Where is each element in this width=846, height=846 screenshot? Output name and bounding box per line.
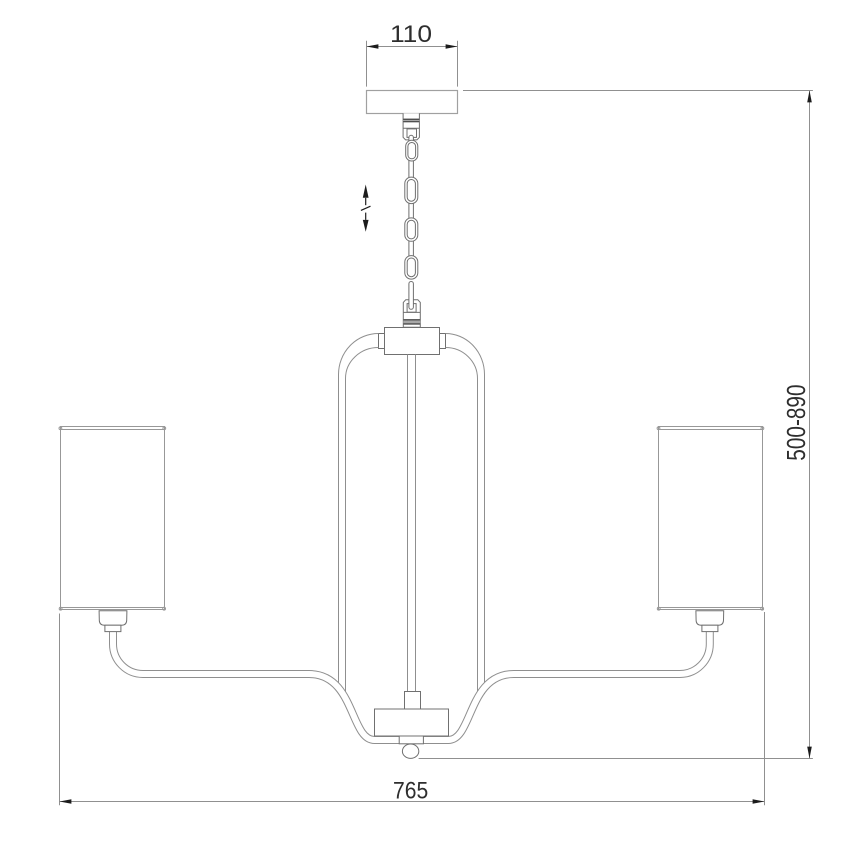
svg-text:110: 110 (390, 21, 432, 48)
svg-text:765: 765 (393, 777, 428, 804)
svg-text:500-890: 500-890 (782, 384, 811, 460)
